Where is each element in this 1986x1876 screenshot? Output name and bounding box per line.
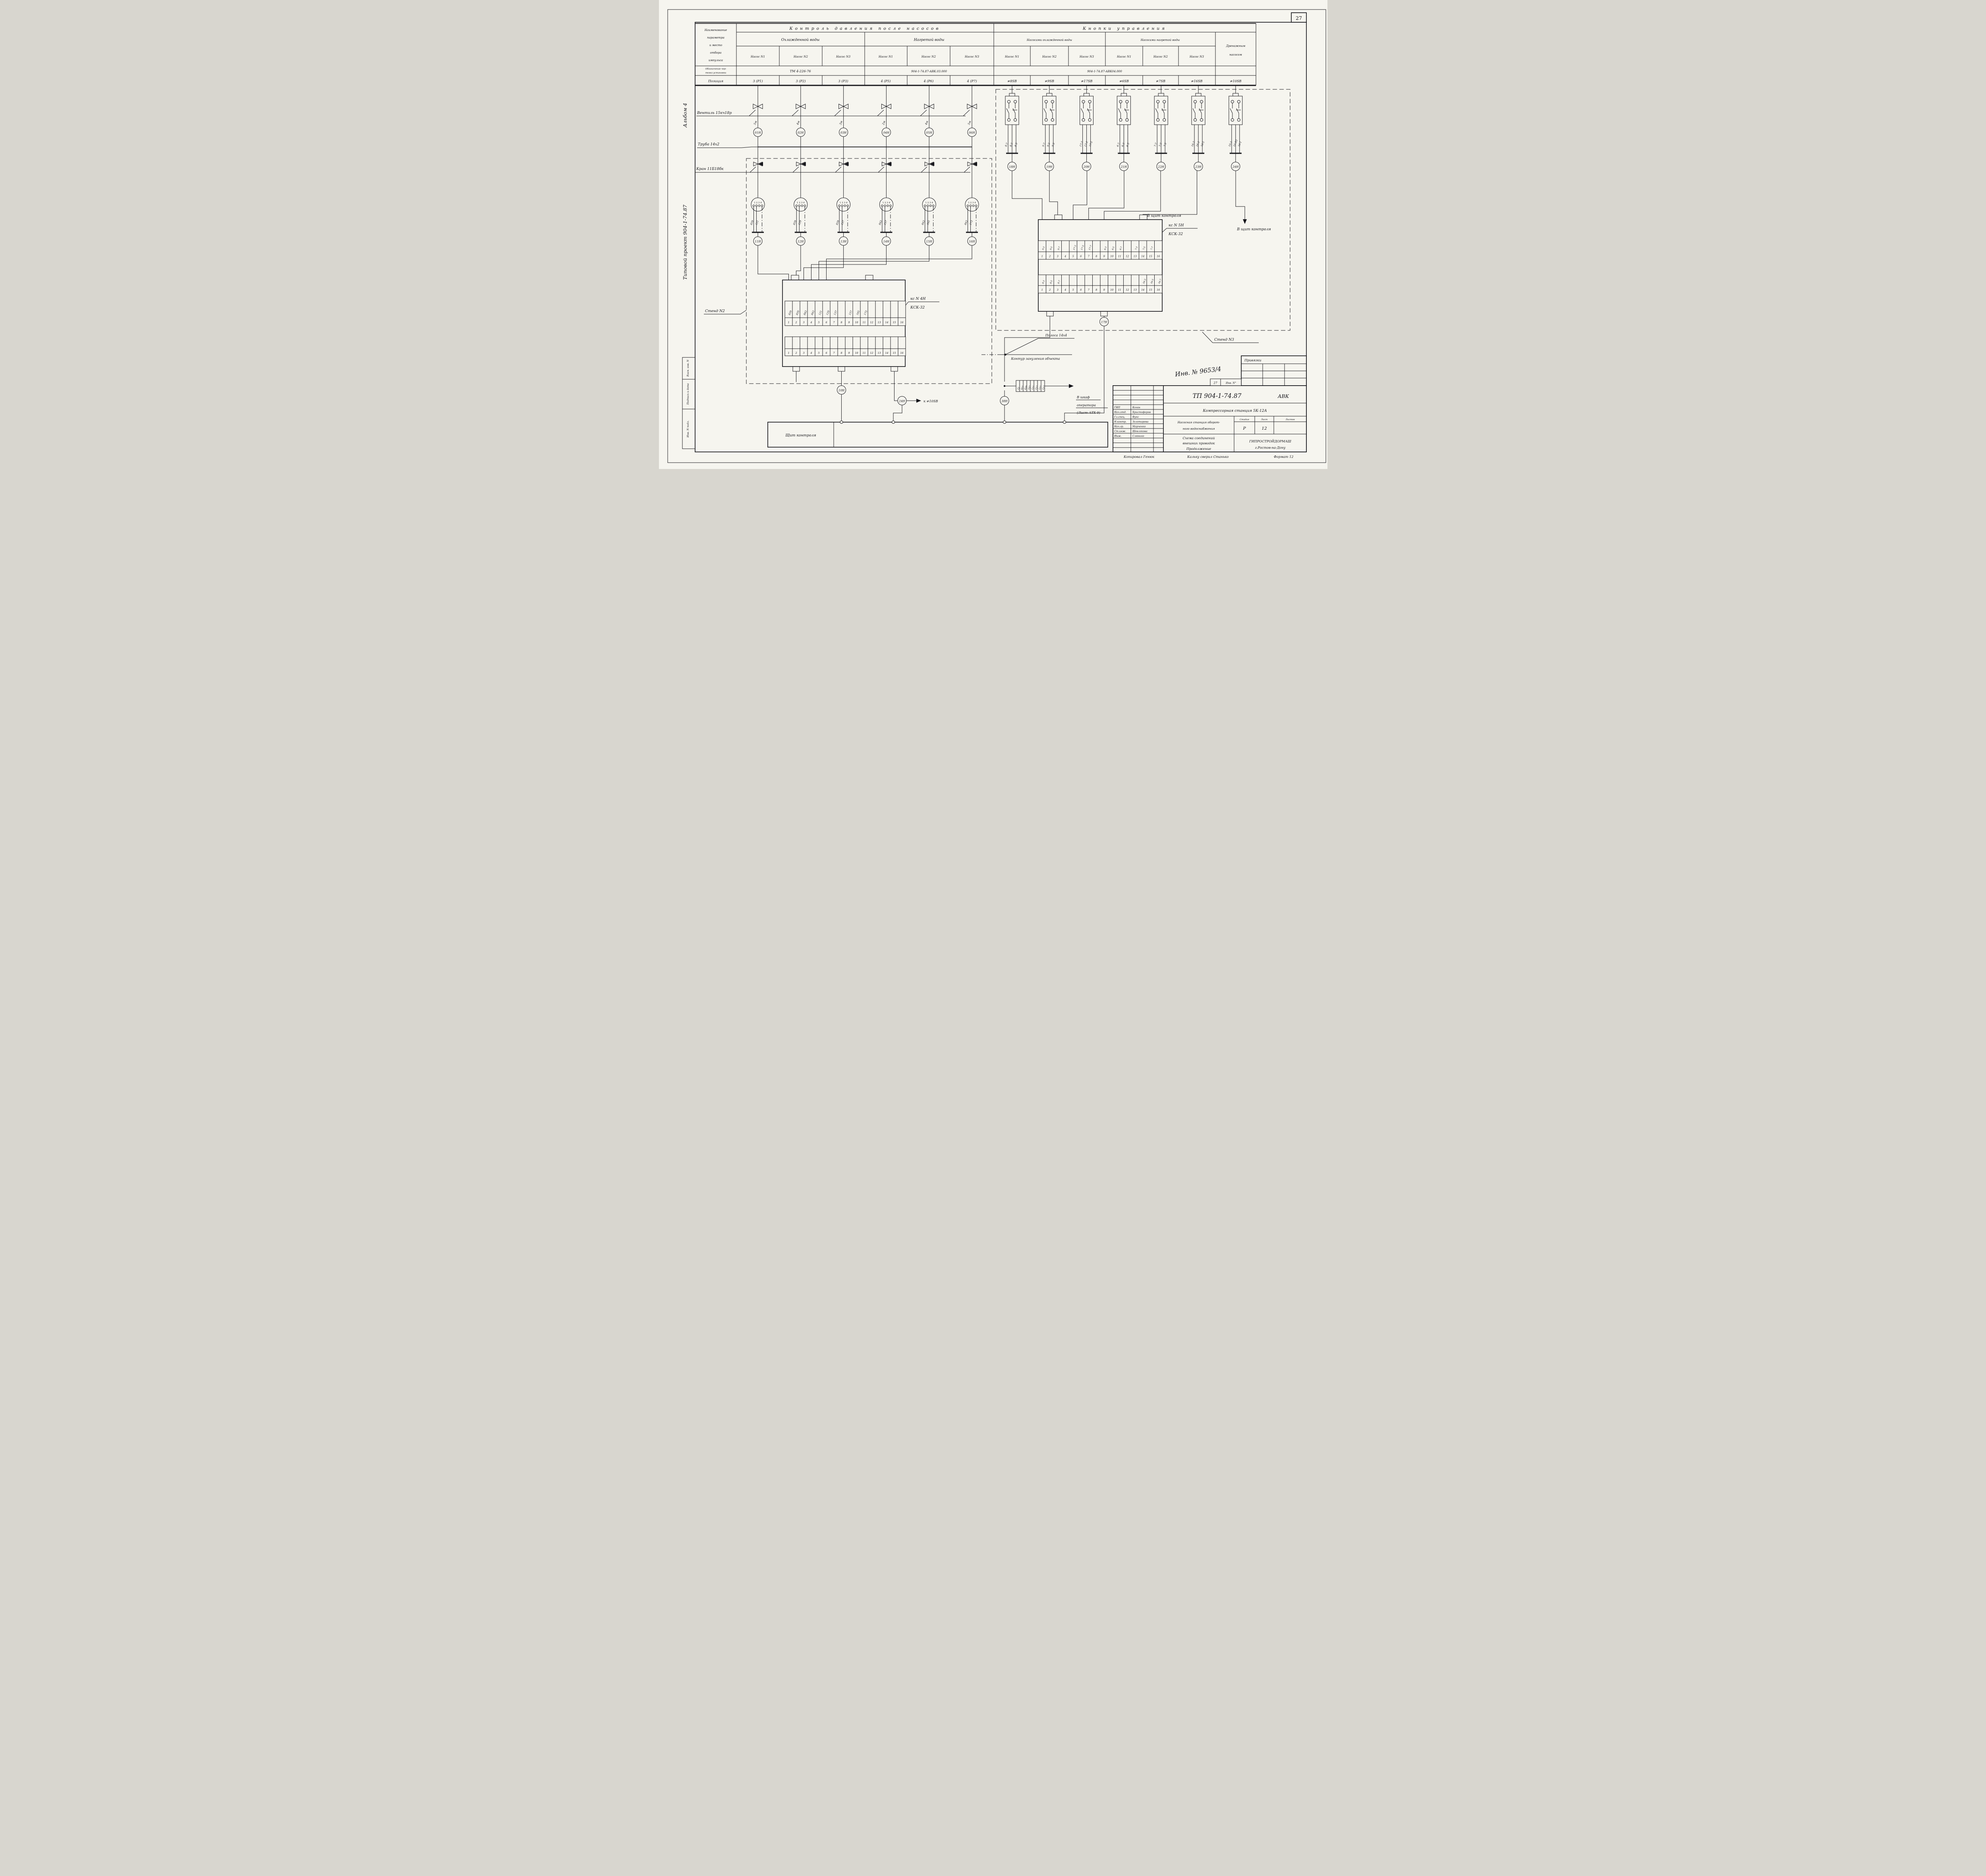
param-line: и место [709, 43, 722, 47]
project-label: Типовой проект 904-1-74.87 [682, 205, 688, 280]
conn-gauge-id: 14Н [883, 240, 889, 243]
pressure-column: 3м 03Н 1 2 3 4 839 137 13Н [835, 85, 850, 258]
copied-label: Копировал Генюк [1123, 455, 1154, 459]
terminal-number: 4 [810, 352, 812, 355]
doc-number: ТП 904-1-74.87 [1192, 392, 1241, 400]
conn-gauge-id: 20Н [1083, 165, 1090, 169]
terminal-number: 3 [1057, 255, 1058, 258]
pin-icon [761, 205, 763, 207]
pump-col: Насос N3 [1079, 55, 1094, 58]
name-label: Слюнько [1132, 435, 1144, 438]
ksn-right-label: кс N 5Н [1169, 223, 1184, 228]
pin-icon [841, 205, 842, 207]
pin-icon [887, 205, 888, 207]
contact-icon [1045, 119, 1047, 122]
terminal-cell: 839 2 [792, 301, 800, 326]
to-cabinet-line: оператора [1077, 403, 1096, 407]
pin-icon [844, 205, 845, 207]
button-wire-tag: 8-5 [1014, 143, 1018, 147]
arrow-right-icon [1069, 384, 1074, 388]
core-number: 129 [798, 220, 802, 226]
button-column: 17-7 17-3 17-5 20Н [1079, 85, 1093, 171]
conn-gauge-id: 11Н [755, 240, 761, 243]
terminal-number: 2 [795, 352, 797, 355]
contact-icon [1156, 119, 1159, 122]
button-column: 7-7 7-3 7-5 22Н [1153, 85, 1168, 171]
terminal-cell: 839 1 [785, 301, 792, 326]
terminal-cell: 17-7 7 [1085, 241, 1093, 259]
terminal-cell: 17-5 6 [1077, 241, 1085, 259]
name-label: Фукс [1132, 416, 1139, 419]
ground-label: Контур зануления объекта [1010, 357, 1060, 361]
arrow-down-icon [1243, 219, 1247, 224]
param-line: параметра [707, 36, 724, 39]
position-cell: ≠6SB [1119, 79, 1129, 83]
button-plunger-icon [1009, 93, 1015, 96]
contact-icon [1082, 100, 1085, 103]
signature-row: Нач.отд. Христофоров [1114, 411, 1151, 414]
terminal-number: 11 [862, 321, 865, 324]
terminal-number: 13 [877, 321, 881, 324]
role-label: Нач.гр. [1114, 425, 1124, 428]
to-operator-labels: В шкаф оператора (Лист АТХ-9) [1076, 395, 1108, 415]
terminal-number: 13 [1133, 289, 1136, 291]
pin-icon [881, 205, 883, 207]
to-shield-label: В щит контроля [1236, 227, 1271, 232]
contact-icon [1125, 100, 1128, 103]
button-wire-tag: 7-5 [1163, 143, 1167, 147]
button-columns: 8-7 8-3 8-5 18Н 9-7 9-3 9-5 19Н [1005, 85, 1242, 171]
terminal-cell: 16-5 15 [1147, 275, 1155, 293]
pin-icon [967, 205, 968, 207]
terminal-number: 1 [1041, 289, 1043, 291]
arrow-right-icon [916, 399, 921, 403]
contact-icon [1014, 119, 1016, 122]
contact-icon [1088, 100, 1091, 103]
param-line: Наименование [704, 28, 727, 32]
shield-label: Щит контроля [785, 433, 816, 438]
inventory-number: Инв. № 9653/4 [1174, 365, 1221, 378]
to-shield-note: В щит контроля [1147, 214, 1181, 218]
button-column: 10-3 10-П1 10-1 24Н [1228, 85, 1242, 171]
gauge-id: 04Н [883, 131, 889, 135]
button-wire-tag: 16-7 [1191, 141, 1196, 147]
terminal-number: 10 [1110, 289, 1113, 291]
terminal-cell: 15 [891, 301, 898, 326]
position-cell: ≠8SB [1007, 79, 1017, 83]
terminal-cell: 17-3 5 [1069, 241, 1077, 259]
role-label: Нач.отд. [1114, 411, 1126, 414]
terminal-number: 7 [1088, 255, 1089, 258]
gauge10-id: 10Н [838, 389, 844, 392]
pin-icon [972, 205, 974, 207]
scheme-line: Схема соединений [1182, 436, 1215, 440]
pin-icon [929, 205, 931, 207]
contact-icon [1231, 119, 1234, 122]
stamp-box-3-label: Инв. N подл. [687, 421, 690, 438]
gauge-id: 03Н [840, 131, 846, 135]
connector-pins: 1 2 3 4 [925, 202, 933, 204]
valve-label: Вентиль 15кч18р [697, 111, 732, 115]
terminal-cell: 14 [883, 337, 891, 356]
terminal-number: 2 [1049, 255, 1051, 258]
sheet-header: Лист [1260, 419, 1267, 421]
drawing-ref: 904-1-74.87-АВК04.000 [1087, 69, 1122, 73]
terminal-number: 14 [1141, 255, 1144, 258]
control-panel: Щит контроля [768, 421, 1108, 448]
stage-header: Стадия [1240, 419, 1249, 421]
contact-icon [1200, 100, 1203, 103]
pipe-length-tag: 4м [924, 120, 929, 126]
terminal-cell: 4 [1061, 275, 1069, 293]
terminal-number: 2 [1049, 289, 1051, 291]
ksn-left-label: кс N 4Н [910, 297, 926, 301]
ksk-left-label: КСК-32 [910, 305, 925, 310]
title-block: ГИП Коган Нач.отд. Христофоров Гл.спец. … [1113, 386, 1306, 452]
terminal-cell: 16-3 14 [1139, 275, 1147, 293]
position-cell: 4 (Р6) [923, 79, 933, 83]
terminal-cell: 14 [883, 301, 891, 326]
terminal-number: 5 [818, 352, 819, 355]
sidebar: Альбом 4 Типовой проект 904-1-74.87 Взам… [682, 103, 695, 449]
name-label: Марченко [1132, 425, 1146, 428]
terminal-cell: 843 3 [800, 301, 808, 326]
contact-icon [1119, 100, 1122, 103]
sub-pumps-cooled: Насосами охлажденной воды [1026, 38, 1072, 42]
connector-pins: 1 2 3 4 [754, 202, 762, 204]
button-wire-tag: 17-3 [1084, 141, 1088, 147]
terminal-cell: 9-3 1 [1038, 241, 1046, 259]
terminal-number: 6 [825, 352, 827, 355]
small-inv-label: Инв. N° [1225, 382, 1236, 385]
terminal-cell: 137 7 [830, 301, 838, 326]
station-label: Компрессорная станция 5К-12А [1202, 409, 1267, 413]
terminal-cell: 3 [800, 337, 808, 356]
terminal-number: 11 [1118, 289, 1121, 291]
terminal-cell: 8-5 2 [1046, 275, 1054, 293]
terminal-cell: 7 [830, 337, 838, 356]
pump-col: Насос N3 [835, 55, 850, 58]
terminal-number: 4 [810, 321, 812, 324]
terminal-number: 2 [795, 321, 797, 324]
terminal-cell: 6-5 10 [1108, 241, 1116, 259]
stamp-box-2-label: Подпись и дата [687, 383, 690, 405]
small-page: 27 [1213, 381, 1217, 385]
role-label: Ст.инж. [1114, 430, 1126, 433]
bottom-caption: Копировал Генюк Кальку сверил Станько Фо… [1123, 455, 1293, 459]
contact-icon [1163, 100, 1165, 103]
core-number: 137 [840, 220, 845, 226]
grounding: Полоса 14х4 Контур зануления объекта [981, 333, 1074, 361]
terminal-cell: 8 [838, 301, 845, 326]
terminal-cell: 16 [898, 337, 906, 356]
terminal-number: 3 [803, 352, 804, 355]
contact-icon [1237, 100, 1240, 103]
button-plunger-icon [1046, 93, 1052, 96]
terminal-cell: 13 [875, 301, 883, 326]
terminal-cell: 8 [1092, 241, 1100, 259]
position-cell: 3 (Р2) [796, 79, 806, 83]
conn24-id: 24Н [898, 400, 905, 403]
contact-icon [1156, 100, 1159, 103]
name-label: Шевлякова [1132, 430, 1148, 433]
contact-icon [1082, 119, 1085, 122]
terminal-cell: 16-7 16 [1154, 275, 1162, 293]
org-city-label: г.Ростов-на-Дону [1255, 446, 1285, 450]
pipe-length-tag: 4м [795, 120, 800, 126]
drawing-row-header: тежа установки [705, 72, 726, 74]
terminal-number: 6 [825, 321, 827, 324]
schematic-canvas: 27 Альбом 4 Типовой проект 904-1-74.87 В… [659, 0, 1327, 469]
pin-icon [975, 205, 977, 207]
role-label: ГИП [1114, 406, 1121, 409]
tap-label: Кран 11Б18бк [696, 167, 724, 171]
param-line: импульса [708, 58, 723, 62]
connector-pins: 1 2 3 4 [968, 202, 976, 204]
terminal-number: 8 [840, 352, 842, 355]
terminal-cell: 121 5 [815, 301, 823, 326]
sub-pumps-heated: Насосами нагретой воды [1140, 38, 1180, 42]
ksk-right-label: КСК-32 [1168, 232, 1183, 236]
contact-icon [1119, 119, 1122, 122]
drain-header: насосом [1229, 53, 1242, 56]
terminal-number: 3 [1057, 289, 1058, 291]
name-label: Христофоров [1132, 411, 1151, 414]
contact-icon [1237, 119, 1240, 122]
terminal-number: 4 [1064, 255, 1066, 258]
connector-pins: 1 2 3 4 [882, 202, 890, 204]
param-line: отбора [710, 51, 721, 54]
pipe-length-tag: 5м [753, 120, 757, 125]
contact-icon [1125, 119, 1128, 122]
terminal-number: 13 [877, 352, 881, 355]
sub-heated: Нагретой воды [913, 38, 944, 42]
pump-col: Насос N3 [964, 55, 979, 58]
terminal-cell: 7-7 15 [1147, 241, 1155, 259]
drawing-ref: ТМ 4-226-76 [790, 69, 811, 73]
terminal-cell: 16 [1154, 241, 1162, 259]
connector-circle [751, 198, 765, 211]
terminal-number: 8 [1095, 289, 1097, 291]
core-number: 121 [755, 220, 759, 226]
pin-icon [758, 205, 760, 207]
conn-gauge-id: 18Н [1009, 165, 1015, 169]
group-right-title: Кнопки управления [1082, 26, 1167, 31]
button-wire-tag: 16-5 [1200, 141, 1205, 147]
terminal-cell: 129 6 [823, 301, 830, 326]
conn-gauge-id: 12Н [798, 240, 804, 243]
connector-circle [965, 198, 979, 211]
core-number: 173 [969, 220, 974, 226]
terminal-number: 16 [900, 352, 903, 355]
button-wire-tag: 9-3 [1047, 143, 1051, 147]
position-cell: ≠16SB [1191, 79, 1202, 83]
ksk-box-left: кс N 4Н КСК-32 839 1 839 2 843 3 [782, 280, 939, 367]
doc-mark: АВК [1277, 393, 1289, 399]
connector-circle [879, 198, 893, 211]
terminal-number: 16 [1157, 289, 1160, 291]
role-label: Гл.спец. [1114, 416, 1125, 419]
conn-gauge-id: 13Н [840, 240, 846, 243]
terminal-number: 9 [848, 352, 850, 355]
button-column: 16-7 16-3 16-5 23Н [1191, 85, 1205, 171]
terminal-number: 1 [788, 321, 789, 324]
position-cell: ≠9SB [1045, 79, 1054, 83]
terminal-number: 5 [1072, 255, 1074, 258]
object-line: Насосная станция оборот- [1177, 421, 1220, 424]
contact-icon [1007, 100, 1010, 103]
terminal-cell: 12 [868, 301, 875, 326]
privyazki-block: Привязки [1241, 356, 1306, 386]
terminal-number: 10 [1110, 255, 1113, 258]
button-wire-tag: 16-3 [1196, 141, 1200, 147]
gauge-id: 01Н [755, 131, 761, 135]
position-cell: ≠7SB [1156, 79, 1165, 83]
conn-gauge-id: 16Н [969, 240, 975, 243]
role-label: Инж. [1114, 435, 1122, 438]
terminal-cell: 11 [860, 337, 868, 356]
contact-icon [1088, 119, 1091, 122]
drawing-row-header: Обозначение чер- [705, 68, 726, 70]
contact-icon [1051, 100, 1054, 103]
contact-icon [1163, 119, 1165, 122]
pressure-column: 5м 06Н 1 2 3 4 843 173 16Н [964, 85, 979, 258]
strip-label: Полоса 14х4 [1045, 333, 1067, 337]
terminal-cell: 4 [808, 337, 815, 356]
pin-icon [755, 205, 757, 207]
terminal-cell: 9-5 2 [1046, 241, 1054, 259]
button-wire-tag: 8-3 [1009, 143, 1013, 147]
pin-icon [801, 205, 803, 207]
role-label: Н.контр. [1114, 421, 1126, 423]
core-number: 157 [883, 220, 888, 226]
group-left-title: Контроль давления после насосов [789, 26, 941, 31]
button-column: 9-7 9-3 9-5 19Н [1042, 85, 1056, 171]
scheme-line: внешних проводок [1182, 441, 1215, 445]
terminal-number: 15 [893, 352, 896, 355]
pump-col: Насос N2 [1153, 55, 1168, 58]
terminal-cell: 6 [823, 337, 830, 356]
terminal-number: 6 [1080, 289, 1082, 291]
terminal-cell: 165 10 [853, 301, 860, 326]
terminal-number: 12 [870, 352, 873, 355]
pipe-length-tag: 5м [967, 120, 972, 125]
pin-icon [927, 205, 928, 207]
terminal-number: 4 [1064, 289, 1066, 291]
core-number: 165 [926, 220, 931, 226]
connector-pins: 1 2 3 4 [839, 202, 847, 204]
cable-bundle-block: 22 811 839 107 111 113 115 117 [1016, 380, 1046, 392]
button-column: 8-7 8-3 8-5 18Н [1005, 85, 1019, 171]
stand2-label: Стенд N2 [705, 309, 725, 313]
button-wire-tag: 17-7 [1079, 141, 1084, 147]
panel-terminal-icon [1003, 421, 1006, 424]
terminal-number: 9 [1103, 289, 1105, 291]
contact-icon [1200, 119, 1203, 122]
button-plunger-icon [1158, 93, 1164, 96]
pin-icon [796, 205, 797, 207]
connector-circle [837, 198, 850, 211]
terminal-number: 11 [1118, 255, 1121, 258]
button-wire-tag: 7-3 [1158, 143, 1162, 147]
button-wire-tag: 6-3 [1121, 143, 1125, 147]
position-cell: ≠17SB [1081, 79, 1092, 83]
org-label: ГИПРОСТРОЙДОРМАШ [1249, 439, 1291, 443]
pin-icon [884, 205, 885, 207]
terminal-number: 13 [1133, 255, 1136, 258]
terminal-cell: 9 [1100, 275, 1108, 293]
terminal-cell: 10 [1108, 275, 1116, 293]
terminal-number: 7 [833, 321, 835, 324]
drain-header: Дренажным [1225, 44, 1245, 48]
terminal-cell: 8-7 3 [1054, 275, 1062, 293]
terminal-cell: 12 [1123, 241, 1131, 259]
gauge-id: 06Н [969, 131, 975, 135]
terminal-number: 10 [855, 321, 858, 324]
conn-gauge-id: 21Н [1120, 165, 1127, 169]
terminal-number: 15 [1149, 255, 1152, 258]
contact-icon [1231, 100, 1234, 103]
conn-gauge-id: 19Н [1046, 165, 1053, 169]
pin-icon [753, 205, 754, 207]
privyazki-label: Привязки [1244, 358, 1261, 362]
button-wire-tag: 10-3 [1228, 141, 1233, 147]
pin-icon [970, 205, 971, 207]
sub-cooled: Охлажденной воды [781, 38, 819, 42]
terminal-cell: 5 [1069, 275, 1077, 293]
terminal-number: 12 [1126, 255, 1129, 258]
button-plunger-icon [1084, 93, 1089, 96]
pin-icon [932, 205, 934, 207]
sheet-value: 12 [1262, 426, 1267, 431]
pin-icon [838, 205, 840, 207]
terminal-cell: 8 [838, 337, 845, 356]
terminal-number: 8 [840, 321, 842, 324]
drawing-ref: 904-1-74.87-АВК.03.000 [911, 69, 947, 73]
pipe-length-tag: 2м [881, 120, 886, 126]
terminal-cell: 15 [891, 337, 898, 356]
terminal-cell: 13 [875, 337, 883, 356]
terminal-number: 15 [1149, 289, 1152, 291]
panel-terminal-icon [892, 421, 894, 424]
terminal-number: 1 [1041, 255, 1043, 258]
panel-terminal-icon [1063, 421, 1066, 424]
checked-label: Кальку сверил Станько [1187, 455, 1229, 459]
connector-circle [922, 198, 936, 211]
ksk-box-right: кс N 5Н КСК-32 9-3 1 9-5 2 9-7 3 [1038, 220, 1198, 311]
button-plunger-icon [1196, 93, 1201, 96]
terminal-number: 1 [788, 352, 789, 355]
gauge17-id: 17Н [1101, 320, 1107, 324]
pin-icon [798, 205, 800, 207]
connector-circle [794, 198, 807, 211]
sheets-header: Листов [1285, 419, 1294, 421]
terminal-cell: 12 [868, 337, 875, 356]
terminal-cell: 157 9 [845, 301, 853, 326]
terminal-number: 7 [1088, 289, 1089, 291]
to-sb-label: к ≠10SB [923, 399, 938, 403]
pressure-columns: 5м 01Н 1 2 3 4 839 121 11Н 4м 02Н [750, 85, 979, 258]
terminal-number: 7 [833, 352, 835, 355]
terminal-cell: 13 [1131, 275, 1139, 293]
button-wire-tag: 17-5 [1088, 141, 1093, 147]
terminal-number: 12 [870, 321, 873, 324]
terminal-cell: 1 [785, 337, 792, 356]
terminal-cell: 6 [1077, 275, 1085, 293]
stand3-label: Стенд N3 [1214, 338, 1234, 342]
pin-icon [804, 205, 806, 207]
button-plunger-icon [1121, 93, 1126, 96]
